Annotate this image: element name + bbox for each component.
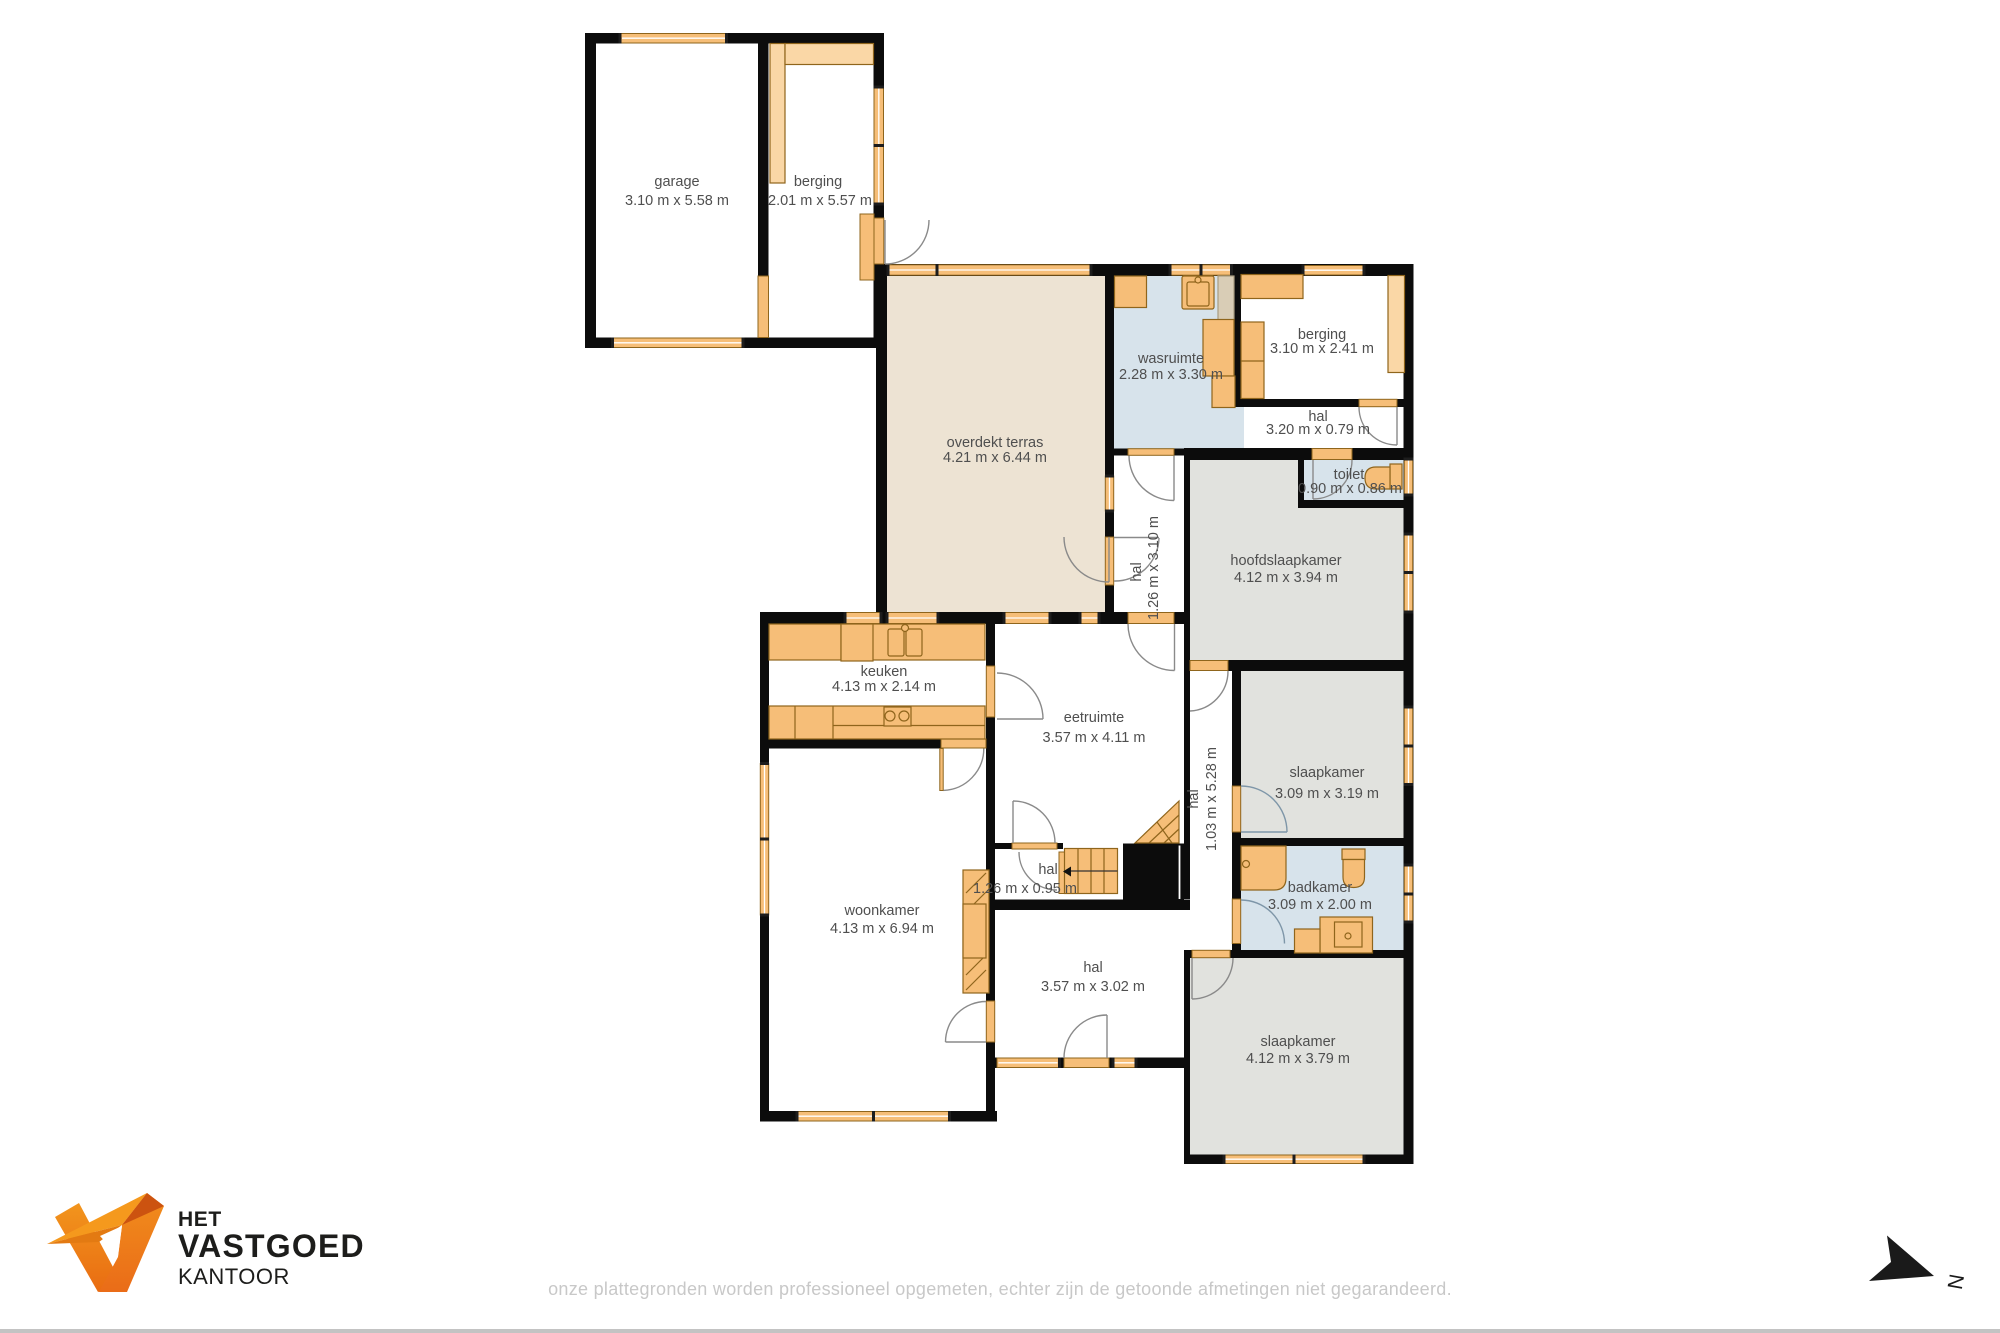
svg-text:woonkamer: woonkamer <box>844 903 920 919</box>
svg-text:overdekt terras: overdekt terras <box>947 435 1044 451</box>
svg-text:KANTOOR: KANTOOR <box>178 1264 290 1289</box>
svg-text:berging: berging <box>794 174 842 190</box>
svg-text:3.20 m x 0.79 m: 3.20 m x 0.79 m <box>1266 422 1370 438</box>
svg-text:3.57 m x 4.11 m: 3.57 m x 4.11 m <box>1043 730 1146 746</box>
svg-text:hal: hal <box>1083 960 1102 976</box>
svg-text:4.21 m x 6.44 m: 4.21 m x 6.44 m <box>943 450 1047 466</box>
svg-text:onze plattegronden worden prof: onze plattegronden worden professioneel … <box>548 1279 1452 1299</box>
svg-text:3.10 m x 5.58 m: 3.10 m x 5.58 m <box>625 193 729 209</box>
svg-text:0.90 m x 0.86 m: 0.90 m x 0.86 m <box>1298 481 1402 497</box>
svg-text:3.10 m x 2.41 m: 3.10 m x 2.41 m <box>1270 341 1374 357</box>
svg-text:4.13 m x 6.94 m: 4.13 m x 6.94 m <box>830 921 934 937</box>
svg-text:3.09 m x 2.00 m: 3.09 m x 2.00 m <box>1268 897 1372 913</box>
svg-text:2.28 m x 3.30 m: 2.28 m x 3.30 m <box>1119 367 1223 383</box>
svg-text:wasruimte: wasruimte <box>1137 351 1204 367</box>
svg-text:3.09 m x 3.19 m: 3.09 m x 3.19 m <box>1275 786 1379 802</box>
svg-text:eetruimte: eetruimte <box>1064 710 1124 726</box>
svg-text:slaapkamer: slaapkamer <box>1290 765 1365 781</box>
svg-text:4.12 m x 3.94 m: 4.12 m x 3.94 m <box>1234 570 1338 586</box>
svg-text:1.03 m x 5.28 m: 1.03 m x 5.28 m <box>1204 747 1220 851</box>
svg-text:hal: hal <box>1129 562 1145 581</box>
svg-text:badkamer: badkamer <box>1288 880 1353 896</box>
svg-text:VASTGOED: VASTGOED <box>178 1228 365 1264</box>
svg-text:4.12 m x 3.79 m: 4.12 m x 3.79 m <box>1246 1051 1350 1067</box>
svg-text:2.01 m x 5.57 m: 2.01 m x 5.57 m <box>768 193 872 209</box>
svg-text:hoofdslaapkamer: hoofdslaapkamer <box>1230 553 1341 569</box>
svg-text:garage: garage <box>654 174 699 190</box>
svg-text:1.26 m x 3.10 m: 1.26 m x 3.10 m <box>1146 516 1162 620</box>
svg-text:keuken: keuken <box>861 664 908 680</box>
svg-text:hal: hal <box>1038 862 1057 878</box>
svg-text:4.13 m x 2.14 m: 4.13 m x 2.14 m <box>832 679 936 695</box>
svg-text:3.57 m x 3.02 m: 3.57 m x 3.02 m <box>1041 979 1145 995</box>
svg-text:1.26 m x 0.95 m: 1.26 m x 0.95 m <box>973 881 1077 897</box>
svg-text:hal: hal <box>1186 789 1202 808</box>
svg-text:slaapkamer: slaapkamer <box>1261 1034 1336 1050</box>
